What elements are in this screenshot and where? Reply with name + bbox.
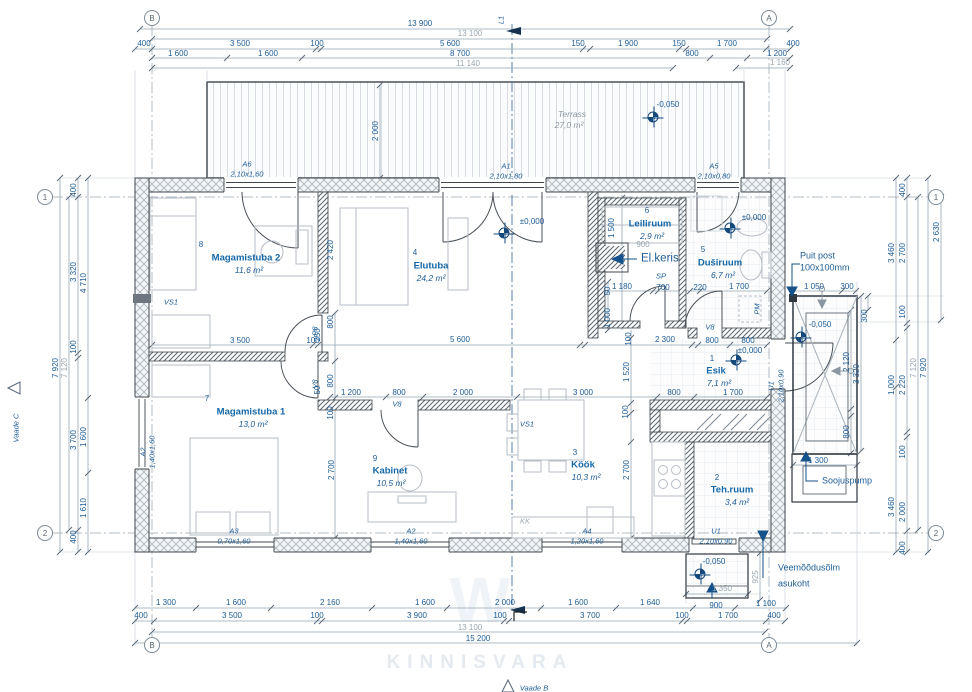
dimension-label: 1 600	[258, 50, 278, 58]
level-value: -0,050	[809, 321, 832, 329]
dimension-label: 3 500	[222, 612, 242, 620]
room-name: Teh.ruum	[711, 485, 754, 495]
dimension-label: 8 700	[450, 50, 470, 58]
dimension-label: 400	[137, 40, 150, 48]
level-marker-icon	[725, 223, 736, 234]
dimension-label: 100	[625, 332, 633, 345]
dimension-label: 2 120	[843, 352, 851, 372]
floor-plan-page: W KINNISVARA	[0, 0, 972, 692]
room-area: 3,4 m²	[725, 498, 749, 507]
tag-label: P8	[311, 326, 319, 335]
dimension-label: 1 610	[80, 498, 88, 518]
dimension-label: 3 700	[70, 430, 78, 450]
room-number: 5	[701, 246, 705, 254]
dimension-label: 100	[899, 305, 907, 318]
dimension-label: 1 900	[618, 40, 638, 48]
dimension-label: 3 320	[853, 364, 861, 384]
dimension-label: 925	[752, 570, 760, 583]
dimension-label: 3 000	[573, 389, 593, 397]
room-number: 1	[710, 355, 714, 363]
note-label: Puit post	[800, 252, 835, 261]
dimension-label: 2 300	[655, 336, 675, 344]
dimension-label: 1 050	[804, 283, 824, 291]
dimension-label: 800	[327, 374, 335, 387]
opening-code: A2	[139, 447, 147, 456]
room-area: 27,0 m²	[555, 121, 584, 130]
grid-marker: 1	[37, 189, 53, 205]
dimension-label: 7 920	[52, 358, 60, 378]
dimension-label: 400	[767, 612, 780, 620]
dimension-label: 100	[622, 405, 630, 418]
dimension-label: 15 200	[466, 635, 490, 643]
opening-code: A2	[406, 527, 415, 535]
annotation-layer: Vaade C Vaade B 13 90013 1004003 5001005…	[0, 0, 972, 692]
dimension-label: 3 460	[888, 243, 896, 263]
room-name: Magamistuba 2	[212, 253, 281, 263]
dimension-label: 400	[899, 183, 907, 196]
level-marker-icon	[796, 332, 807, 343]
dimension-label: 1 600	[568, 599, 588, 607]
room-name: Magamistuba 1	[217, 407, 286, 417]
opening-size: 2,10x0,90	[777, 370, 785, 403]
dimension-label: 800	[685, 50, 698, 58]
view-c-label: Vaade C	[12, 414, 20, 443]
level-marker-icon	[731, 355, 742, 366]
opening-code: U1	[711, 527, 721, 535]
dimension-label: 800	[705, 337, 718, 345]
tag-label: VS1	[164, 298, 178, 306]
dimension-label: 50	[604, 287, 612, 296]
room-area: 13,0 m²	[239, 420, 268, 429]
dimension-label: 150	[571, 40, 584, 48]
dimension-label: 100	[899, 445, 907, 458]
room-area: 24,2 m²	[417, 274, 446, 283]
dimension-label: 800	[392, 389, 405, 397]
dimension-label: 900	[636, 241, 649, 249]
dimension-label: 1 600	[80, 427, 88, 447]
tag-label: VS1	[520, 420, 534, 428]
dimension-label: 2 160	[320, 599, 340, 607]
room-name: Elutuba	[414, 261, 449, 271]
opening-size: 2,10x0,80	[698, 172, 731, 180]
opening-code: A4	[582, 527, 591, 535]
dimension-label: 400	[70, 183, 78, 196]
dimension-label: 400	[786, 40, 799, 48]
view-b-label: Vaade B	[520, 684, 549, 692]
dimension-label: 1 200	[767, 50, 787, 58]
opening-code: A6	[242, 160, 251, 168]
opening-size: 1,40x1,60	[148, 436, 156, 469]
level-marker-icon	[499, 228, 510, 239]
note-label: asukoht	[778, 580, 810, 589]
dimension-label: 4 710	[80, 273, 88, 293]
level-value: ±0,000	[742, 214, 766, 222]
grid-marker: 2	[928, 525, 944, 541]
room-name: Esik	[706, 366, 726, 376]
dimension-label: 1 000	[604, 308, 612, 328]
opening-code: U1	[767, 381, 775, 391]
dimension-label: 1 700	[718, 612, 738, 620]
level-value: -0,050	[703, 558, 726, 566]
dimension-label: 3 700	[580, 612, 600, 620]
tag-label: KK	[520, 517, 530, 525]
dimension-label: 2 000	[899, 502, 907, 522]
dimension-label: 5 600	[450, 336, 470, 344]
opening-size: 0,70x1,60	[218, 537, 251, 545]
dimension-label: 1 640	[640, 599, 660, 607]
grid-marker: B	[144, 10, 160, 26]
dimension-label: 1 200	[341, 389, 361, 397]
room-name: Leiliruum	[629, 219, 672, 229]
dimension-label: 400	[70, 530, 78, 543]
dimension-label: 2 700	[328, 460, 336, 480]
dimension-label: 100	[327, 406, 335, 419]
room-number: 6	[645, 207, 649, 215]
dimension-label: 1 300	[808, 457, 828, 465]
grid-marker: A	[761, 637, 777, 653]
dimension-label: 100	[70, 340, 78, 353]
dimension-label: 13 900	[408, 20, 432, 28]
dimension-label: 1 160	[770, 59, 790, 67]
opening-code: A1	[501, 162, 510, 170]
room-name: Duširuum	[698, 258, 742, 268]
dimension-label: 1 500	[608, 218, 616, 238]
dimension-label: 1 000	[888, 375, 896, 395]
opening-size: 1,40x1,60	[395, 537, 428, 545]
dimension-label: 800	[667, 389, 680, 397]
room-name: Kabinet	[373, 466, 408, 476]
level-value: -0,050	[657, 101, 680, 109]
grid-marker: A	[761, 10, 777, 26]
dimension-label: 5 600	[440, 40, 460, 48]
dimension-label: 300	[840, 283, 853, 291]
dimension-label: 7 120	[61, 358, 69, 378]
dimension-label: 3 320	[70, 262, 78, 282]
dimension-label: 800	[843, 425, 851, 438]
dimension-label: 900	[709, 602, 722, 610]
dimension-label: 100	[310, 612, 323, 620]
opening-code: A5	[709, 162, 718, 170]
tag-label: L1	[497, 16, 505, 24]
level-marker-icon	[648, 112, 659, 123]
level-value: ±0,000	[520, 218, 544, 226]
tag-label: SP	[656, 272, 666, 280]
note-label: 100x100mm	[800, 264, 850, 273]
dimension-label: 1 600	[168, 50, 188, 58]
dimension-label: 1 520	[623, 362, 631, 382]
opening-size: 1,20x1,60	[571, 537, 604, 545]
dimension-label: 1 300	[156, 599, 176, 607]
dimension-label: 7 920	[920, 358, 928, 378]
room-number: 2	[715, 474, 719, 482]
note-label: Soojuspump	[822, 477, 872, 486]
room-number: 3	[573, 449, 577, 457]
dimension-label: 1 350	[712, 585, 732, 593]
opening-size: 2,10x0,90	[700, 537, 733, 545]
dimension-label: 1 600	[415, 599, 435, 607]
dimension-label: 1 180	[612, 283, 632, 291]
dimension-label: 1 700	[723, 389, 743, 397]
dimension-label: 800	[741, 337, 754, 345]
level-marker-icon	[695, 569, 706, 580]
room-number: 4	[413, 249, 417, 257]
dimension-label: 2 220	[899, 375, 907, 395]
dimension-label: 1 700	[729, 283, 749, 291]
opening-code: A3	[229, 527, 238, 535]
room-number: 8	[199, 241, 203, 249]
level-value: ±0,000	[738, 347, 762, 355]
dimension-label: 400	[134, 612, 147, 620]
dimension-label: 2 000	[495, 599, 515, 607]
tag-label: V8	[311, 379, 319, 388]
dimension-label: 2 000	[372, 121, 380, 141]
dimension-label: 3 460	[888, 497, 896, 517]
room-area: 6,7 m²	[711, 271, 735, 280]
dimension-label: 2 630	[933, 222, 941, 242]
dimension-label: 1 700	[717, 40, 737, 48]
dimension-label: 2 700	[899, 243, 907, 263]
dimension-label: 100	[493, 612, 506, 620]
grid-marker: 1	[928, 189, 944, 205]
dimension-label: 2 700	[623, 460, 631, 480]
grid-marker: 2	[37, 525, 53, 541]
dimension-label: 3 900	[407, 612, 427, 620]
dimension-label: 700	[656, 284, 669, 292]
room-area: 10,3 m²	[572, 473, 601, 482]
grid-marker: B	[144, 637, 160, 653]
dimension-label: 2 420	[327, 240, 335, 260]
note-label: Veemõõdusõlm	[778, 564, 840, 573]
dimension-label: 3 500	[230, 337, 250, 345]
dimension-label: 300	[861, 309, 869, 322]
room-name: Köök	[571, 460, 595, 470]
tag-label: V8	[705, 323, 714, 331]
dimension-label: 1 600	[226, 599, 246, 607]
dimension-label: 3 500	[230, 40, 250, 48]
dimension-label: 100	[675, 612, 688, 620]
room-area: 7,1 m²	[707, 379, 731, 388]
dimension-label: 2 000	[453, 389, 473, 397]
tag-label: V8	[392, 400, 401, 408]
room-area: 11,6 m²	[235, 266, 263, 275]
dimension-label: 400	[899, 541, 907, 554]
dimension-label: 13 100	[458, 624, 482, 632]
room-area: 2,9 m²	[640, 232, 664, 241]
dimension-label: 100	[310, 40, 323, 48]
dimension-label: 13 100	[458, 30, 482, 38]
note-label: El.keris	[641, 253, 679, 265]
dimension-label: 7 120	[910, 358, 918, 378]
dimension-label: 11 140	[456, 60, 480, 68]
dimension-label: 800	[327, 315, 335, 328]
room-number: 9	[373, 455, 377, 463]
opening-size: 2,10x1,80	[490, 172, 523, 180]
room-number: 7	[205, 395, 209, 403]
dimension-label: 220	[693, 284, 706, 292]
tag-label: PM	[753, 303, 761, 314]
dimension-label: 150	[672, 40, 685, 48]
room-name: Terrass	[558, 110, 586, 119]
opening-size: 2,10x1,60	[231, 170, 264, 178]
dimension-label: 1 100	[756, 600, 776, 608]
room-area: 10,5 m²	[377, 479, 406, 488]
